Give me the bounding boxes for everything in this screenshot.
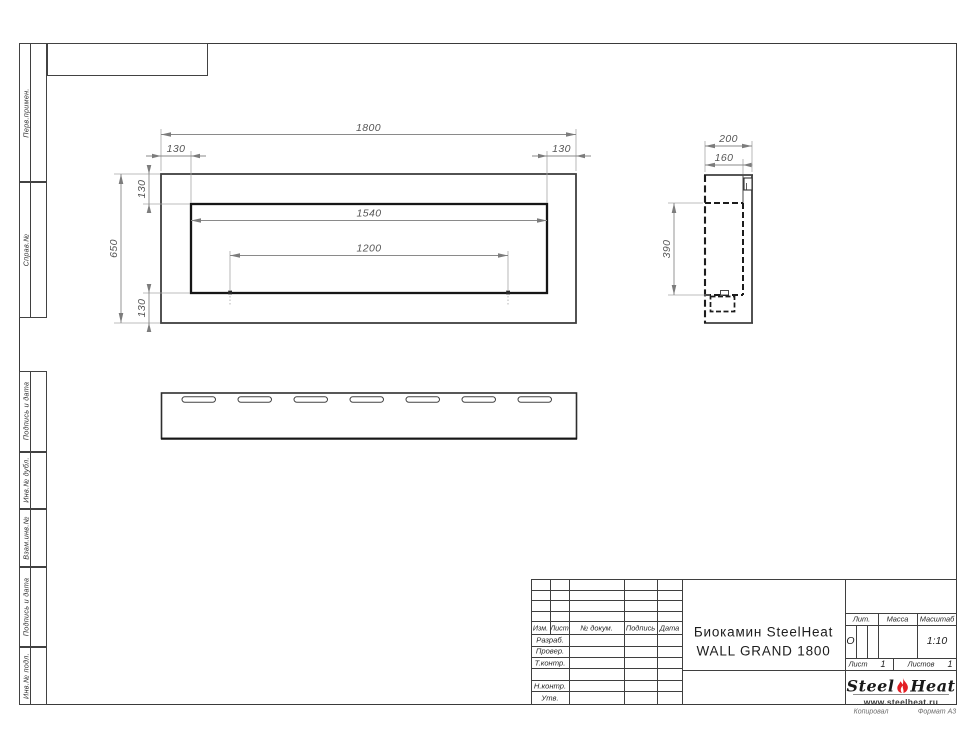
role-razrab: Разраб. bbox=[536, 636, 563, 645]
col-list: Лист bbox=[550, 624, 569, 633]
role-utv: Утв. bbox=[541, 694, 558, 703]
side-view bbox=[704, 175, 753, 323]
role-tkontr: Т.контр. bbox=[535, 658, 566, 667]
role-nkontr: Н.контр. bbox=[534, 681, 566, 690]
dim-front-bottom-offset: 130 bbox=[136, 299, 148, 318]
dim-front-total-height: 650 bbox=[108, 239, 120, 258]
burner-anchor-right bbox=[506, 291, 510, 295]
format-note: Формат А3 bbox=[918, 709, 956, 716]
scale-value: 1:10 bbox=[927, 635, 947, 647]
dim-side-inner-depth: 160 bbox=[715, 152, 734, 164]
burner-anchor-left bbox=[228, 291, 232, 295]
dim-front-opening-width: 1540 bbox=[357, 208, 382, 220]
logo-url-text: www.steelheat.ru bbox=[864, 697, 938, 707]
hidden-burner-block bbox=[711, 297, 735, 312]
burner-lid-bump bbox=[721, 291, 729, 296]
bottom-view bbox=[161, 393, 577, 439]
col-podpis: Подпись bbox=[626, 624, 655, 633]
doc-title-line1: Биокамин SteelHeat bbox=[694, 625, 833, 640]
dim-side-depth: 200 bbox=[718, 133, 738, 145]
title-block: Изм. Лист № докум. Подпись Дата Разраб. … bbox=[531, 579, 957, 705]
dim-front-total-width: 1800 bbox=[356, 122, 381, 134]
mounting-bracket bbox=[744, 178, 752, 190]
doc-title-line2: WALL GRAND 1800 bbox=[696, 644, 830, 659]
role-prover: Провер. bbox=[536, 647, 564, 656]
logo-heat-text: Heat bbox=[910, 677, 955, 696]
sheets-value: 1 bbox=[947, 659, 952, 669]
dim-front-top-offset: 130 bbox=[136, 180, 148, 199]
drawing-sheet: Перв.примен. Справ.№ Подпись и дата Инв.… bbox=[0, 0, 970, 749]
mass-label: Масса bbox=[887, 615, 909, 624]
logo-divider bbox=[853, 694, 949, 695]
dim-front-burner-span: 1200 bbox=[357, 243, 382, 255]
lit-label: Лит. bbox=[853, 615, 870, 624]
logo-steel-text: Steel bbox=[847, 677, 895, 696]
sheets-label: Листов bbox=[908, 660, 935, 669]
col-ndokum: № докум. bbox=[580, 624, 613, 633]
dim-side-opening-height: 390 bbox=[661, 240, 673, 259]
copy-note: Копировал bbox=[854, 709, 889, 716]
sheet-value: 1 bbox=[880, 659, 885, 669]
col-data: Дата bbox=[660, 624, 680, 633]
steelheat-logo: Steel Heat bbox=[847, 677, 956, 696]
dim-front-left-offset: 130 bbox=[167, 143, 186, 155]
lit-value: О bbox=[846, 635, 854, 647]
dim-front-right-offset: 130 bbox=[552, 143, 571, 155]
sheet-label: Лист bbox=[848, 660, 867, 669]
col-izm: Изм. bbox=[533, 624, 548, 633]
logo-cell: Steel Heat www.steelheat.ru bbox=[845, 670, 957, 705]
scale-label: Масштаб bbox=[920, 615, 955, 624]
flame-icon bbox=[895, 678, 909, 695]
